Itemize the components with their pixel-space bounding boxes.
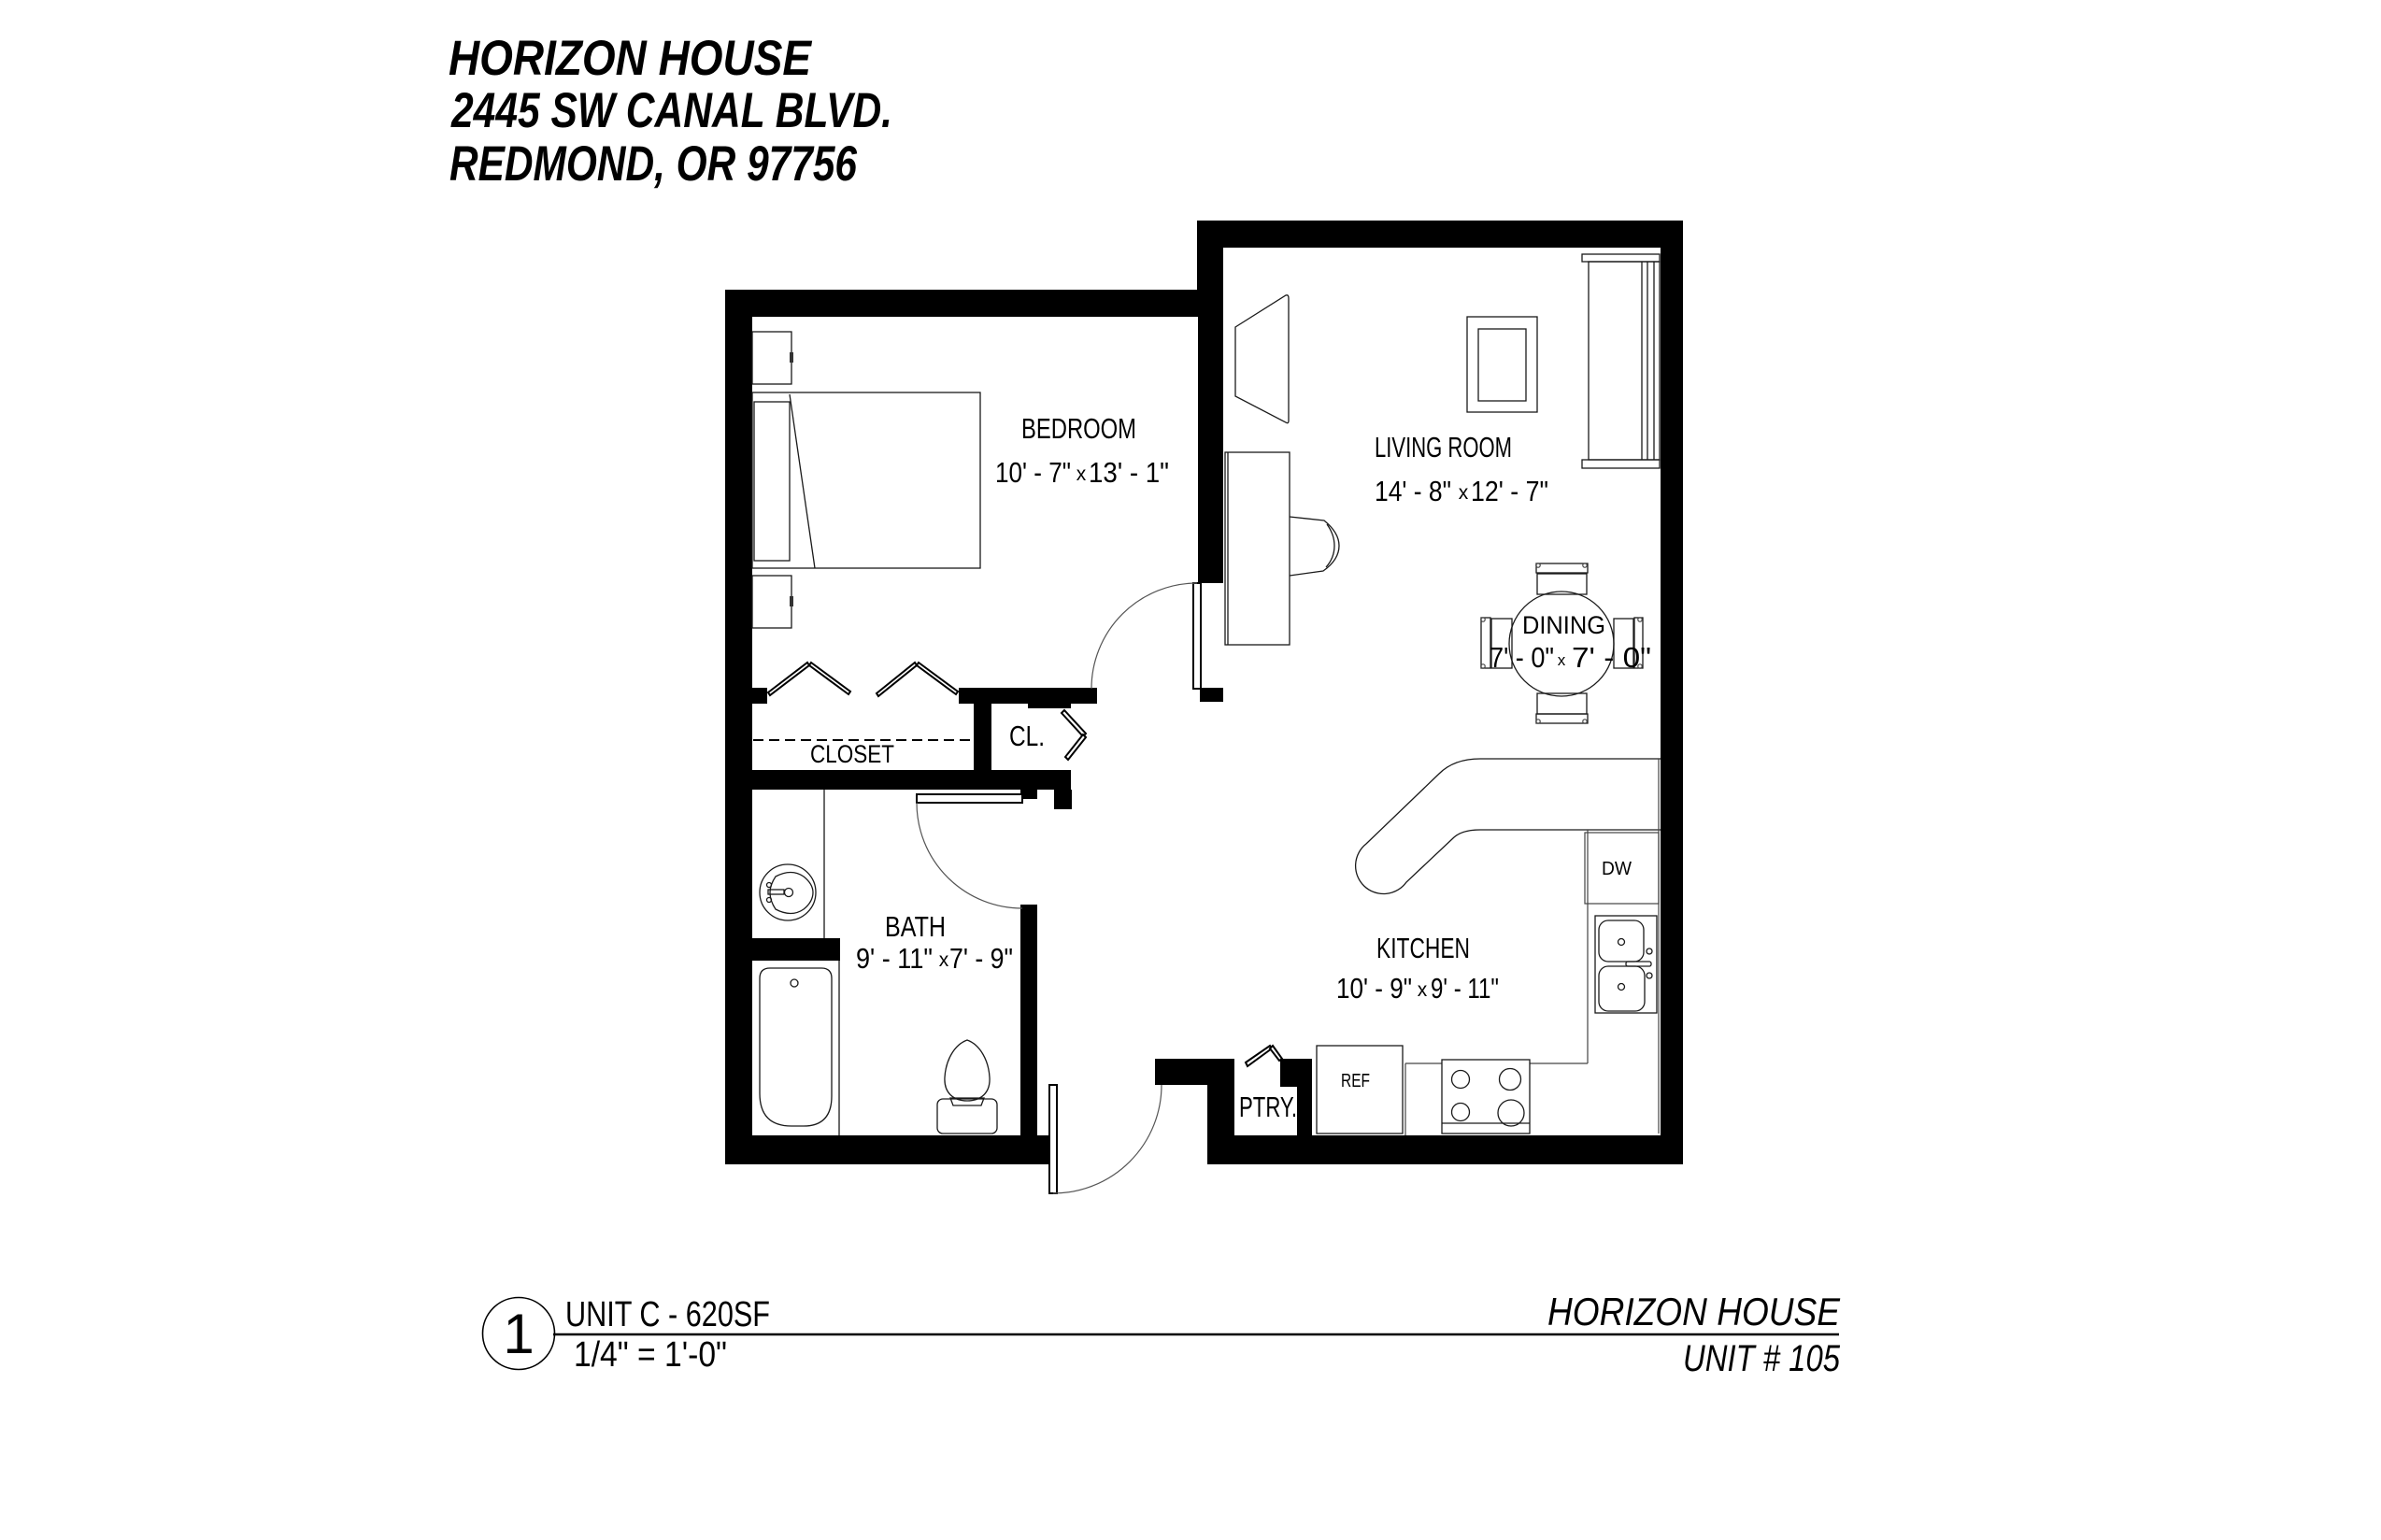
svg-text:10' - 7": 10' - 7" xyxy=(995,456,1071,489)
svg-text:9' - 11": 9' - 11" xyxy=(1431,972,1499,1005)
svg-text:x: x xyxy=(1418,979,1428,1001)
svg-text:REF: REF xyxy=(1341,1071,1370,1091)
svg-text:10' - 9": 10' - 9" xyxy=(1336,972,1412,1005)
svg-text:7' - 9": 7' - 9" xyxy=(949,942,1013,975)
svg-text:9' - 11": 9' - 11" xyxy=(856,942,933,975)
svg-text:DW: DW xyxy=(1602,859,1632,879)
svg-text:13' - 1": 13' - 1" xyxy=(1089,456,1169,489)
svg-text:x: x xyxy=(939,949,949,971)
svg-text:2445 SW CANAL BLVD.: 2445 SW CANAL BLVD. xyxy=(450,83,892,138)
svg-text:BATH: BATH xyxy=(885,910,946,943)
svg-text:7' - 0": 7' - 0" xyxy=(1572,641,1651,674)
svg-text:x: x xyxy=(1558,651,1566,669)
svg-text:HORIZON HOUSE: HORIZON HOUSE xyxy=(449,31,812,86)
svg-text:KITCHEN: KITCHEN xyxy=(1376,932,1470,964)
svg-text:UNIT C - 620SF: UNIT C - 620SF xyxy=(565,1295,770,1334)
svg-text:CLOSET: CLOSET xyxy=(810,740,894,768)
svg-text:HORIZON HOUSE: HORIZON HOUSE xyxy=(1547,1290,1841,1333)
svg-text:14' - 8": 14' - 8" xyxy=(1375,475,1451,507)
svg-text:LIVING ROOM: LIVING ROOM xyxy=(1375,431,1512,463)
svg-text:1: 1 xyxy=(503,1303,534,1365)
svg-text:UNIT # 105: UNIT # 105 xyxy=(1683,1338,1841,1379)
svg-text:DINING: DINING xyxy=(1522,611,1605,639)
svg-text:REDMOND, OR 97756: REDMOND, OR 97756 xyxy=(449,136,857,192)
svg-text:x: x xyxy=(1459,482,1469,504)
svg-text:PTRY.: PTRY. xyxy=(1239,1091,1297,1123)
svg-text:7' - 0": 7' - 0" xyxy=(1490,641,1554,674)
svg-text:1/4" = 1'-0": 1/4" = 1'-0" xyxy=(574,1335,727,1375)
svg-text:BEDROOM: BEDROOM xyxy=(1021,412,1136,445)
svg-text:CL.: CL. xyxy=(1009,720,1045,752)
svg-text:12' - 7": 12' - 7" xyxy=(1471,475,1548,507)
svg-text:x: x xyxy=(1076,463,1087,485)
